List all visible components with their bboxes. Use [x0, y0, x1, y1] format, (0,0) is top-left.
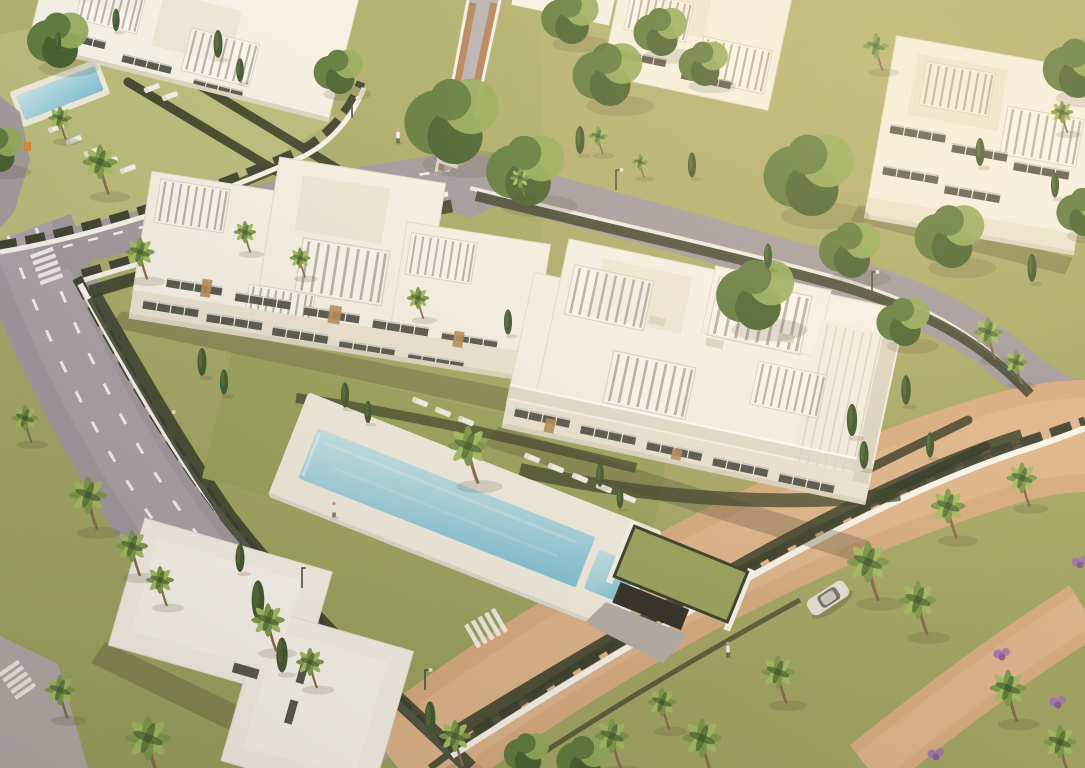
- scene-svg: [0, 0, 1085, 768]
- aerial-architectural-render: [0, 0, 1085, 768]
- vignette-overlay: [0, 0, 1085, 768]
